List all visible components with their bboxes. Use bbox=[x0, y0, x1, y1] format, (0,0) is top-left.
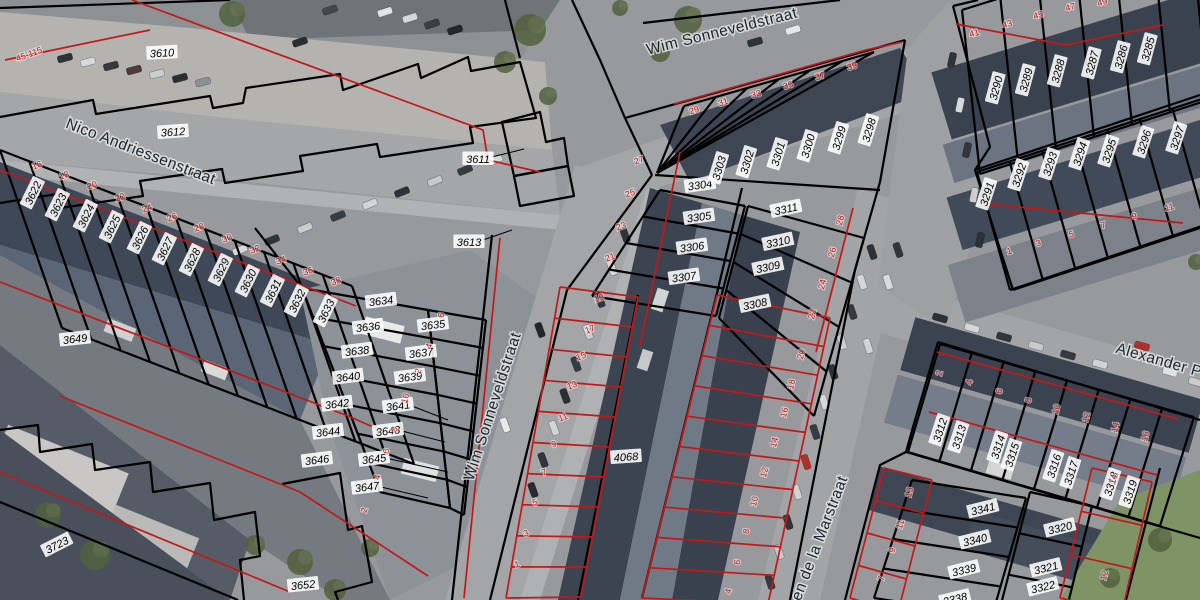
tree bbox=[612, 0, 628, 16]
tree bbox=[287, 549, 313, 575]
parcel-label: 3613 bbox=[453, 235, 484, 249]
parcel-label: 3612 bbox=[157, 123, 189, 139]
svg-text:3610: 3610 bbox=[150, 47, 176, 60]
parcel-label: 3611 bbox=[462, 152, 493, 166]
svg-text:3611: 3611 bbox=[466, 154, 490, 166]
svg-text:3652: 3652 bbox=[290, 579, 316, 593]
map-viewport[interactable]: 3610361236113613364936523723362236233624… bbox=[0, 0, 1200, 600]
parcel-label: 4068 bbox=[610, 448, 642, 464]
tree bbox=[1148, 528, 1172, 552]
parcel-label: 3610 bbox=[146, 45, 178, 61]
svg-text:3612: 3612 bbox=[160, 126, 185, 140]
tree bbox=[219, 1, 245, 27]
tree bbox=[245, 535, 265, 555]
tree bbox=[514, 14, 546, 46]
tree bbox=[539, 87, 557, 105]
tree bbox=[494, 51, 516, 73]
svg-text:3613: 3613 bbox=[457, 237, 482, 249]
tree bbox=[35, 502, 61, 528]
svg-text:4068: 4068 bbox=[613, 451, 639, 465]
svg-text:3649: 3649 bbox=[62, 333, 88, 347]
cadastral-map-canvas[interactable]: 3610361236113613364936523723362236233624… bbox=[0, 0, 1200, 600]
